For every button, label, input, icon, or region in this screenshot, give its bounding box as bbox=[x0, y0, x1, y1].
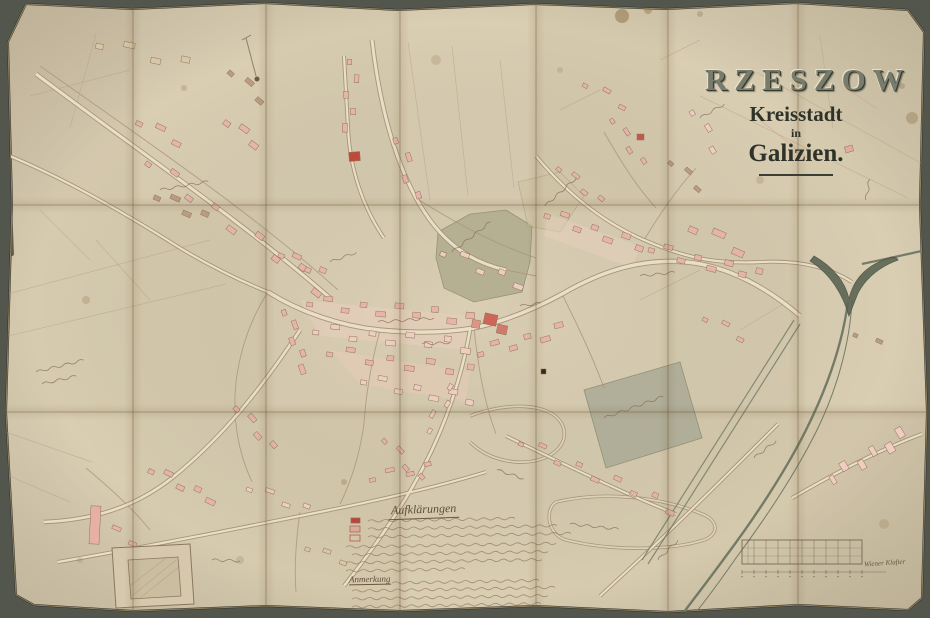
building bbox=[331, 324, 340, 330]
map-canvas: RZESZOW Kreisstadt in Galizien. Aufkläru… bbox=[0, 0, 930, 618]
building bbox=[324, 296, 333, 302]
legend-swatch bbox=[350, 526, 360, 532]
map-subtitle: Kreisstadt bbox=[698, 102, 894, 127]
building bbox=[375, 311, 385, 317]
building bbox=[467, 364, 474, 371]
map-subtitle-in: in bbox=[698, 127, 894, 140]
building bbox=[431, 306, 438, 312]
building bbox=[466, 312, 475, 319]
building bbox=[444, 336, 451, 342]
building bbox=[447, 318, 457, 325]
map-title: RZESZOW bbox=[698, 62, 894, 98]
building bbox=[347, 59, 352, 64]
landmark-building bbox=[496, 324, 508, 335]
legend-swatch bbox=[351, 518, 360, 523]
map-region: Galizien. bbox=[698, 140, 894, 169]
building bbox=[460, 348, 470, 355]
landmark-building bbox=[349, 152, 361, 162]
building bbox=[445, 368, 453, 375]
building bbox=[313, 330, 319, 335]
building bbox=[341, 308, 349, 314]
landmark-building bbox=[637, 134, 644, 140]
building bbox=[365, 360, 374, 366]
building bbox=[307, 302, 313, 307]
building bbox=[346, 347, 356, 353]
building bbox=[342, 123, 347, 132]
building bbox=[354, 75, 359, 83]
building bbox=[360, 302, 367, 308]
building bbox=[349, 336, 357, 342]
legend-title: Aufklärungen bbox=[388, 501, 460, 520]
building bbox=[360, 380, 367, 386]
legend-note-title: Anmerkung bbox=[349, 574, 391, 586]
landmark-building bbox=[483, 313, 498, 326]
landmark-building bbox=[471, 319, 480, 328]
building bbox=[414, 384, 422, 390]
building bbox=[412, 312, 420, 318]
building bbox=[326, 352, 333, 357]
building bbox=[426, 358, 435, 365]
building bbox=[369, 331, 376, 337]
title-underline bbox=[759, 174, 833, 176]
building bbox=[350, 109, 355, 115]
map-title-block: RZESZOW Kreisstadt in Galizien. bbox=[698, 62, 894, 176]
landmark-building bbox=[89, 506, 101, 544]
building bbox=[343, 91, 348, 98]
